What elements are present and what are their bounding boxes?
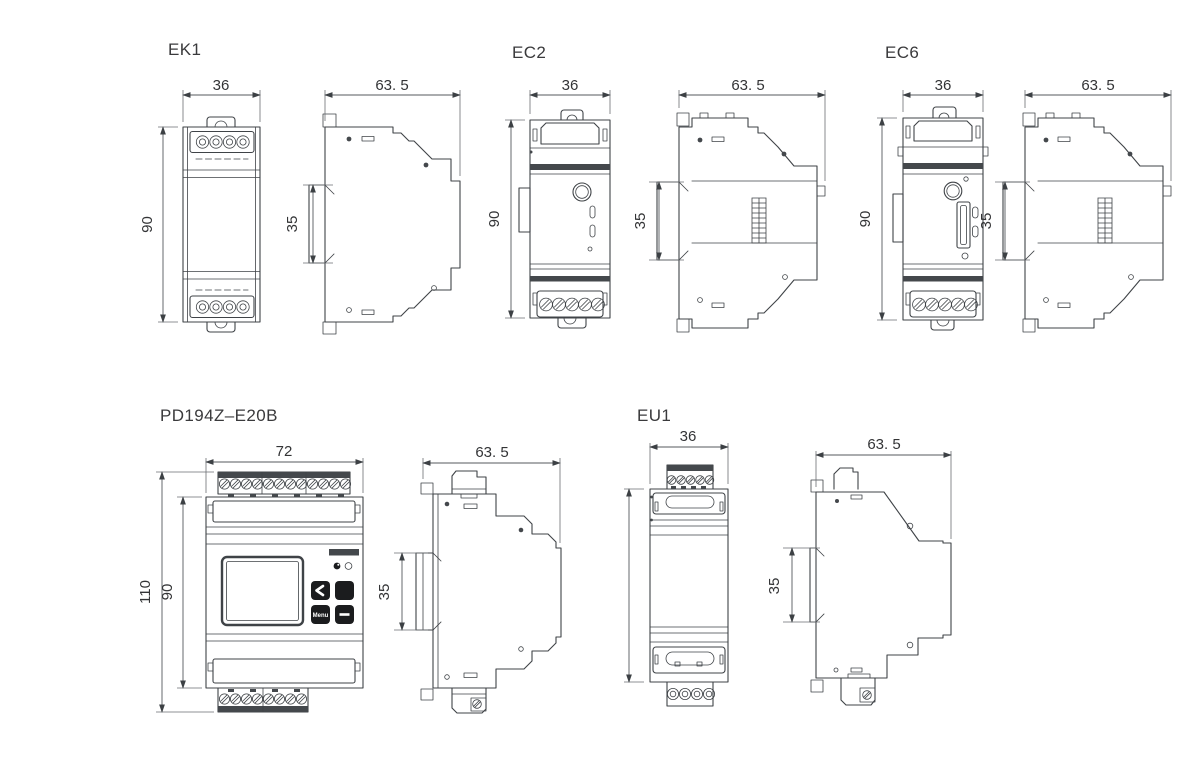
pd194z-front-view: Menu 72 11 xyxy=(137,443,363,712)
depth-dimension-label: 63. 5 xyxy=(375,77,408,94)
menu-button-label: Menu xyxy=(313,613,329,619)
label-window xyxy=(329,549,359,556)
device-title: EC6 xyxy=(885,43,919,62)
keypad: Menu xyxy=(311,581,354,624)
status-led xyxy=(345,563,352,570)
depth-dimension-label: 63. 5 xyxy=(475,444,508,461)
device-title: EC2 xyxy=(512,43,546,62)
ek1-front-view: 36 90 xyxy=(139,77,260,332)
pd194z-side-view: 63. 5 35 xyxy=(376,444,561,713)
lcd-display xyxy=(222,557,303,625)
height-dimension-label: 90 xyxy=(857,211,874,228)
back-button xyxy=(311,581,330,600)
device-ek1: EK1 36 9 xyxy=(139,40,460,334)
depth-dimension-label: 63. 5 xyxy=(731,77,764,94)
rail-dimension-label: 35 xyxy=(766,578,783,595)
rail-dimension-label: 35 xyxy=(978,213,995,230)
pd194z-body-height-dimension: 90 xyxy=(159,497,202,688)
width-dimension-label: 36 xyxy=(213,77,230,94)
height-dimension-label: 90 xyxy=(486,211,503,228)
device-ec6: EC6 xyxy=(857,43,1171,332)
depth-dimension-label: 63. 5 xyxy=(1081,77,1114,94)
eu1-height-dimension xyxy=(624,489,644,682)
device-title: EU1 xyxy=(637,406,671,425)
device-title: EK1 xyxy=(168,40,201,59)
device-pd194z-e20b: PD194Z–E20B xyxy=(137,406,561,713)
width-dimension-label: 36 xyxy=(935,77,952,94)
ec2-depth-dimension: 63. 5 xyxy=(679,77,825,181)
width-dimension-label: 72 xyxy=(276,443,293,460)
rail-dimension-label: 35 xyxy=(632,213,649,230)
device-ec2: EC2 xyxy=(486,43,825,332)
ec2-front-view: 36 90 xyxy=(486,77,610,328)
depth-dimension-label: 63. 5 xyxy=(867,436,900,453)
eu1-rail-dimension: 35 xyxy=(766,548,820,622)
rail-dimension-label: 35 xyxy=(376,584,393,601)
ec2-side-view: 63. 5 35 xyxy=(632,77,825,332)
ek1-side-view: 63. 5 35 xyxy=(284,77,460,334)
drawing-canvas: EK1 36 9 xyxy=(0,0,1200,765)
ec6-rail-dimension: 35 xyxy=(978,182,1030,260)
width-dimension-label: 36 xyxy=(680,428,697,445)
ec6-side-view: 63. 5 35 xyxy=(978,77,1171,332)
ek1-height-dimension: 90 xyxy=(139,127,178,322)
device-eu1: EU1 xyxy=(624,406,951,706)
technical-dimension-drawing: EK1 36 9 xyxy=(0,0,1200,765)
minus-icon xyxy=(340,613,350,616)
device-title: PD194Z–E20B xyxy=(160,406,278,425)
ec6-height-dimension: 90 xyxy=(857,118,897,320)
total-height-dimension-label: 110 xyxy=(137,580,154,604)
blank-button xyxy=(335,581,354,600)
height-dimension-label: 90 xyxy=(139,216,156,233)
pd194z-rail-dimension: 35 xyxy=(376,553,428,630)
status-led xyxy=(334,563,341,570)
ec2-rail-dimension: 35 xyxy=(632,182,684,260)
ec6-front-view: 36 90 xyxy=(857,77,988,330)
ec6-depth-dimension: 63. 5 xyxy=(1025,77,1171,181)
eu1-side-view: 63. 5 35 xyxy=(766,436,951,705)
ek1-width-dimension: 36 xyxy=(183,77,260,122)
width-dimension-label: 36 xyxy=(562,77,579,94)
ec2-width-dimension: 36 xyxy=(530,77,610,114)
body-height-dimension-label: 90 xyxy=(159,584,176,601)
eu1-depth-dimension: 63. 5 xyxy=(816,436,951,539)
eu1-front-view: 36 xyxy=(624,428,728,706)
rail-dimension-label: 35 xyxy=(284,216,301,233)
